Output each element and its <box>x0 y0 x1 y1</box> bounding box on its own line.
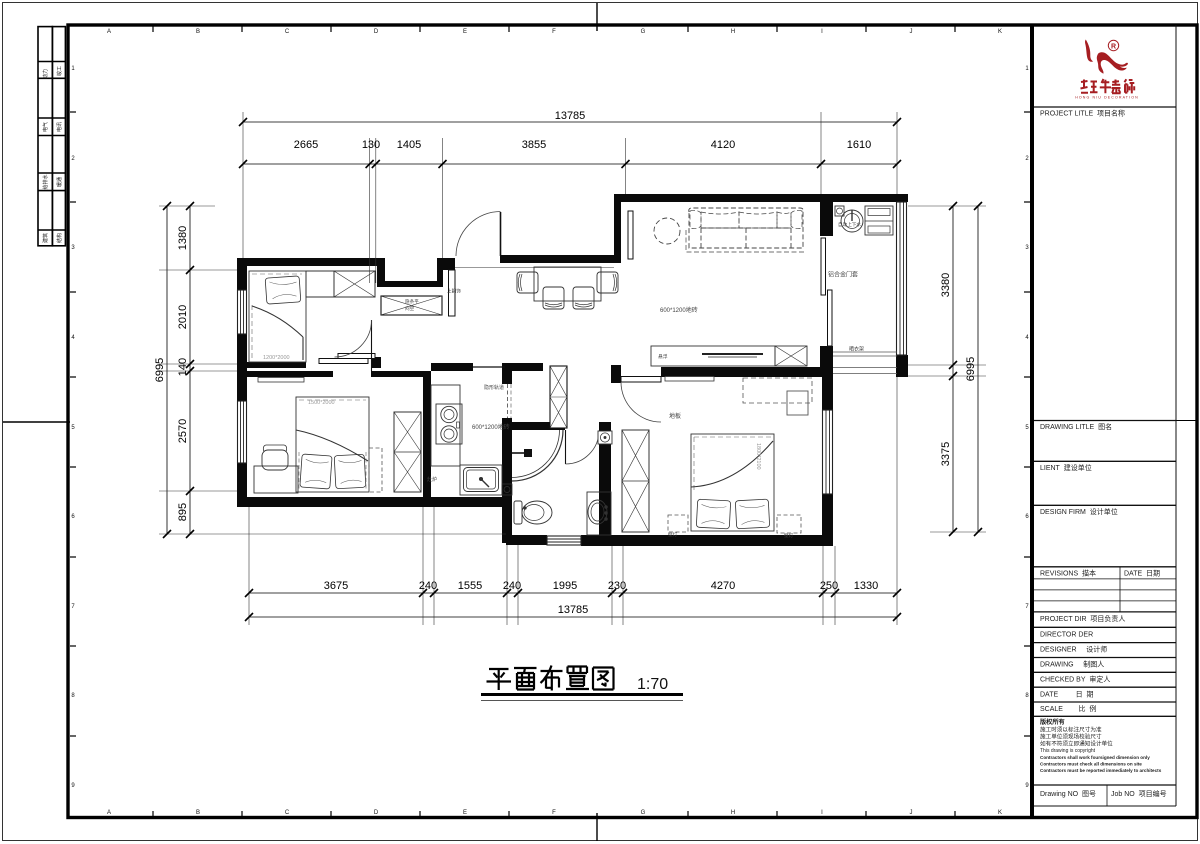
svg-text:230: 230 <box>608 580 626 592</box>
svg-text:E: E <box>463 29 467 35</box>
svg-text:Contractors shall work foursig: Contractors shall work foursigned dimens… <box>1040 755 1150 760</box>
svg-text:F: F <box>552 810 556 816</box>
svg-text:如有不符须立即通知设计单位: 如有不符须立即通知设计单位 <box>1040 740 1113 748</box>
svg-text:DATE 日 期: DATE 日 期 <box>1040 691 1094 699</box>
svg-text:130: 130 <box>362 139 380 151</box>
svg-text:B: B <box>196 810 200 816</box>
svg-text:K: K <box>998 810 1002 816</box>
svg-text:地板: 地板 <box>669 412 681 420</box>
svg-text:K: K <box>998 29 1002 35</box>
svg-text:3675: 3675 <box>324 580 348 592</box>
svg-text:电气: 电气 <box>42 122 49 132</box>
svg-text:竣工: 竣工 <box>56 66 63 76</box>
svg-text:HONG NIU DECORATION: HONG NIU DECORATION <box>1075 96 1139 100</box>
svg-text:3375: 3375 <box>940 442 952 466</box>
svg-text:3380: 3380 <box>940 273 952 297</box>
svg-text:1405: 1405 <box>397 139 421 151</box>
svg-text:PROJECT LITLE 项目名称: PROJECT LITLE 项目名称 <box>1040 109 1125 118</box>
svg-text:6995: 6995 <box>154 358 166 382</box>
svg-text:140: 140 <box>177 358 189 376</box>
svg-text:Contractors must check all dim: Contractors must check all dimensions on… <box>1040 762 1142 767</box>
svg-text:240: 240 <box>419 580 437 592</box>
svg-text:DESIGNER 设计师: DESIGNER 设计师 <box>1040 645 1107 654</box>
svg-text:给排水: 给排水 <box>42 174 49 189</box>
svg-text:PROJECT DIR 项目负责人: PROJECT DIR 项目负责人 <box>1040 614 1125 623</box>
svg-text:建筑: 建筑 <box>42 233 49 243</box>
svg-text:This drawing is copyright: This drawing is copyright <box>1040 748 1096 754</box>
svg-text:D: D <box>374 29 379 35</box>
svg-text:1555: 1555 <box>458 580 482 592</box>
svg-text:1330: 1330 <box>854 580 878 592</box>
svg-text:4120: 4120 <box>711 139 735 151</box>
svg-text:R: R <box>1111 43 1116 50</box>
svg-text:A: A <box>107 29 111 35</box>
svg-text:600*1200地砖: 600*1200地砖 <box>472 423 510 431</box>
svg-text:悬浮: 悬浮 <box>658 353 668 360</box>
svg-text:250: 250 <box>820 580 838 592</box>
svg-text:1800*2100: 1800*2100 <box>755 443 761 470</box>
svg-text:1610: 1610 <box>847 139 871 151</box>
svg-text:2010: 2010 <box>177 305 189 329</box>
svg-text:电讯: 电讯 <box>56 122 63 132</box>
svg-text:暖通: 暖通 <box>56 177 63 187</box>
svg-text:A: A <box>107 810 111 816</box>
svg-text:DRAWING LITLE 图名: DRAWING LITLE 图名 <box>1040 422 1112 431</box>
svg-text:D: D <box>374 810 379 816</box>
svg-text:动力: 动力 <box>42 69 49 79</box>
svg-text:13785: 13785 <box>555 110 586 122</box>
svg-text:G: G <box>641 810 646 816</box>
svg-text:1200*2000: 1200*2000 <box>263 355 290 361</box>
svg-text:隐形轨道: 隐形轨道 <box>484 384 504 391</box>
svg-text:895: 895 <box>177 503 189 521</box>
svg-text:240: 240 <box>503 580 521 592</box>
svg-text:J: J <box>910 29 913 35</box>
svg-text:结构: 结构 <box>56 233 63 243</box>
svg-text:壁灯: 壁灯 <box>784 532 794 539</box>
svg-text:隐条平: 隐条平 <box>405 298 419 305</box>
svg-text:DIRECTOR DER: DIRECTOR DER <box>1040 632 1093 639</box>
svg-text:灶炉: 灶炉 <box>427 476 437 483</box>
svg-text:SCALE 比 例: SCALE 比 例 <box>1040 704 1096 713</box>
svg-text:4270: 4270 <box>711 580 735 592</box>
svg-text:施工单位须现场校验尺寸: 施工单位须现场校验尺寸 <box>1040 733 1102 741</box>
svg-text:H: H <box>731 810 735 816</box>
svg-text:CHECKED BY 审定人: CHECKED BY 审定人 <box>1040 675 1110 684</box>
svg-text:1:70: 1:70 <box>637 676 668 693</box>
svg-text:6995: 6995 <box>965 357 977 381</box>
svg-text:13785: 13785 <box>558 604 589 616</box>
svg-text:DATE 日期: DATE 日期 <box>1124 570 1160 578</box>
svg-text:1995: 1995 <box>553 580 577 592</box>
svg-text:2570: 2570 <box>177 419 189 443</box>
svg-text:LIENT 建设单位: LIENT 建设单位 <box>1040 463 1092 472</box>
svg-text:Drawing NO 图号: Drawing NO 图号 <box>1040 790 1096 798</box>
svg-text:F: F <box>552 29 556 35</box>
svg-text:晒衣架: 晒衣架 <box>849 346 864 353</box>
svg-text:B: B <box>196 29 200 35</box>
svg-text:1380: 1380 <box>177 226 189 250</box>
svg-text:上翻饰: 上翻饰 <box>447 288 461 295</box>
svg-text:Job NO 项目编号: Job NO 项目编号 <box>1111 789 1167 798</box>
svg-text:G: G <box>641 29 646 35</box>
svg-text:C: C <box>285 29 290 35</box>
svg-text:H: H <box>731 29 735 35</box>
svg-text:J: J <box>910 810 913 816</box>
svg-text:Contractors must be reported i: Contractors must be reported immediately… <box>1040 768 1162 773</box>
svg-text:2665: 2665 <box>294 139 318 151</box>
svg-text:600*1200地砖: 600*1200地砖 <box>660 306 698 314</box>
svg-text:铝合金门套: 铝合金门套 <box>828 271 858 279</box>
svg-text:3855: 3855 <box>522 139 546 151</box>
svg-text:REVISIONS 描本: REVISIONS 描本 <box>1040 569 1096 578</box>
svg-text:1500*2000: 1500*2000 <box>308 400 335 406</box>
svg-text:壁灯: 壁灯 <box>668 531 678 538</box>
svg-text:版权所有: 版权所有 <box>1039 718 1065 726</box>
svg-text:施工时须以标注尺寸为准: 施工时须以标注尺寸为准 <box>1040 726 1102 734</box>
svg-text:E: E <box>463 810 467 816</box>
svg-text:闷空: 闷空 <box>405 305 415 312</box>
svg-text:DRAWING 制图人: DRAWING 制图人 <box>1040 660 1104 669</box>
svg-text:自动上下水: 自动上下水 <box>838 221 861 228</box>
svg-text:C: C <box>285 810 290 816</box>
svg-text:DESIGN FIRM 设计单位: DESIGN FIRM 设计单位 <box>1040 507 1118 516</box>
